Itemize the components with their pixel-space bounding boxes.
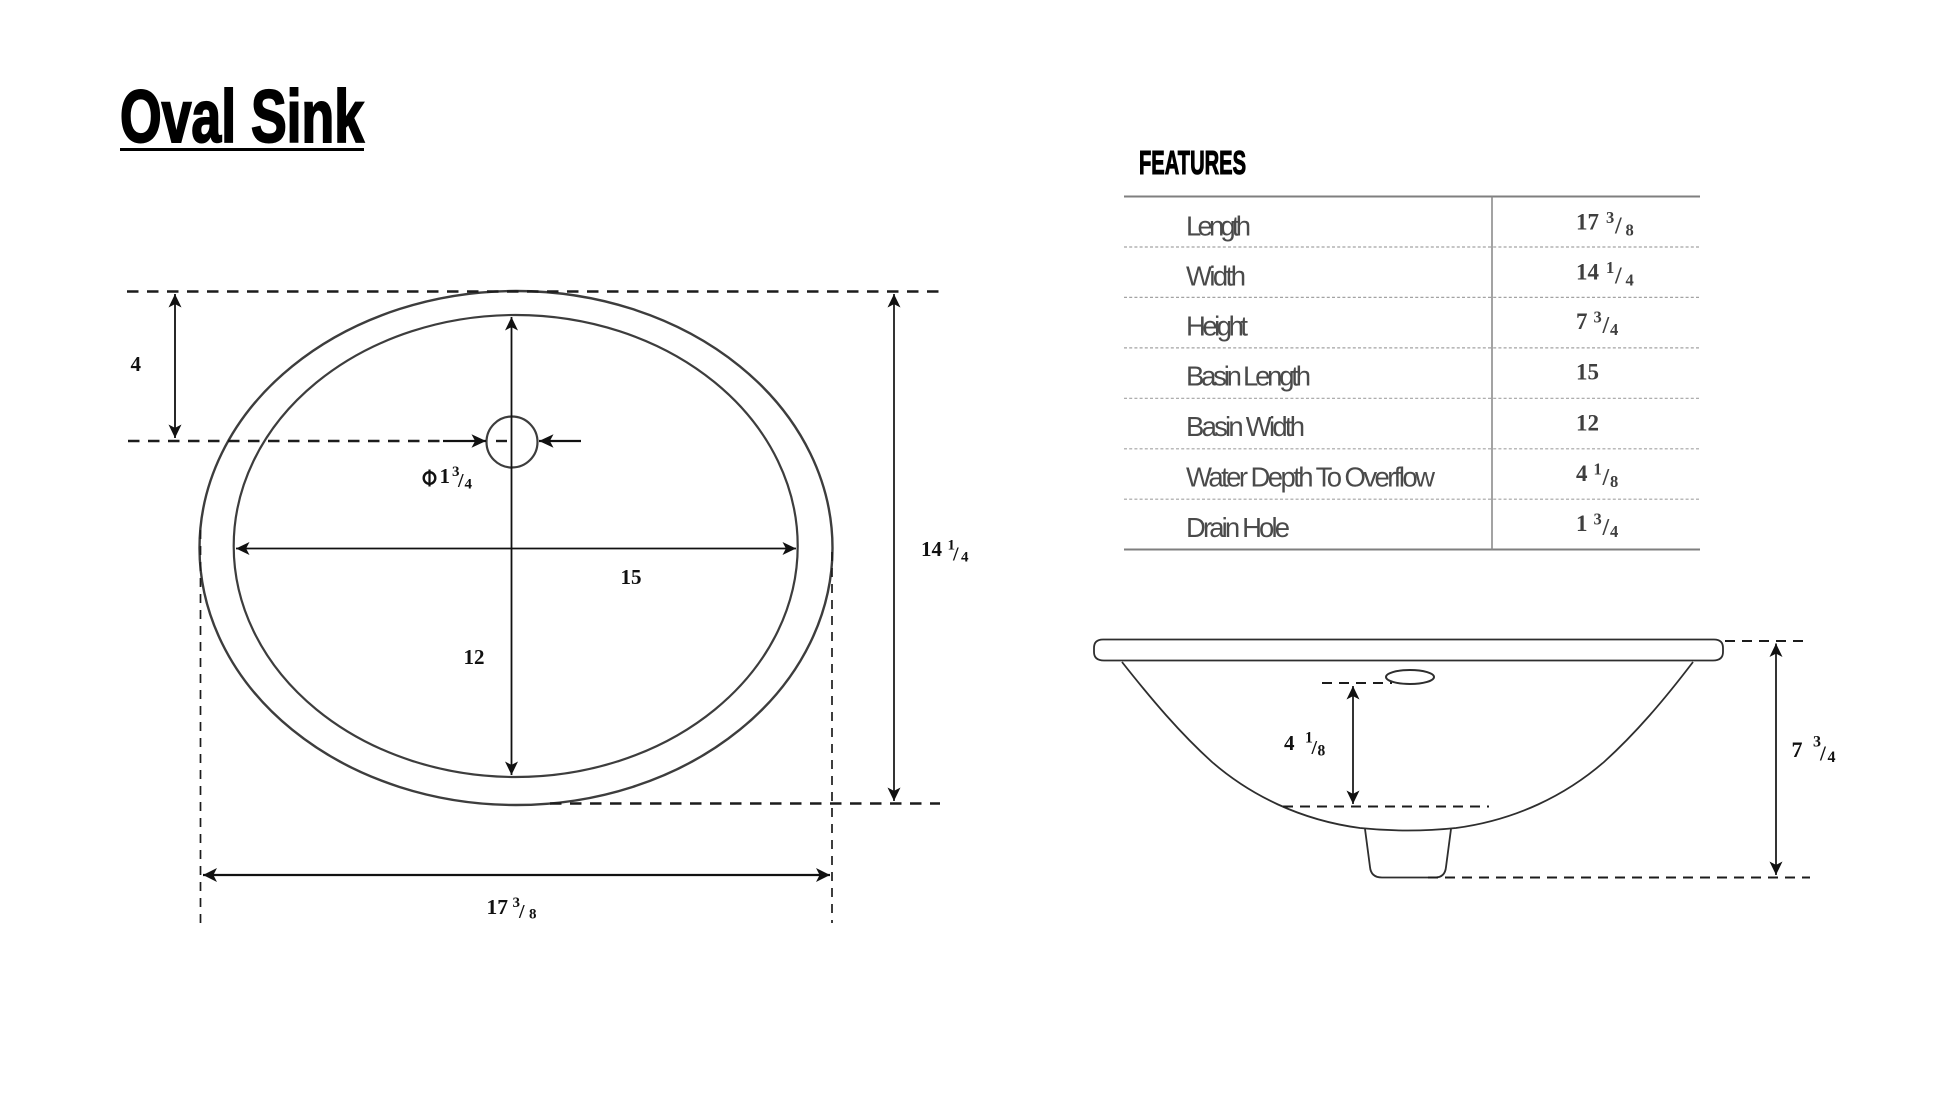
- svg-text:7: 7: [1576, 309, 1588, 334]
- svg-text:8: 8: [1610, 472, 1618, 491]
- svg-text:/: /: [1819, 742, 1827, 766]
- svg-text:7: 7: [1792, 737, 1803, 762]
- svg-text:Width: Width: [1186, 261, 1246, 292]
- svg-text:4: 4: [465, 477, 473, 493]
- svg-text:4: 4: [1626, 271, 1634, 290]
- svg-text:4: 4: [131, 352, 142, 376]
- svg-text:Drain Hole: Drain Hole: [1186, 512, 1290, 543]
- svg-text:3: 3: [1606, 208, 1614, 227]
- svg-text:/: /: [1602, 313, 1610, 339]
- svg-text:4: 4: [1828, 749, 1836, 766]
- svg-text:14: 14: [921, 537, 943, 561]
- svg-text:14: 14: [1576, 260, 1600, 285]
- svg-text:/: /: [1602, 515, 1610, 541]
- svg-text:17: 17: [487, 895, 509, 919]
- svg-text:15: 15: [621, 565, 642, 589]
- svg-text:1: 1: [1594, 460, 1602, 479]
- svg-text:12: 12: [1576, 411, 1599, 436]
- svg-text:4: 4: [1284, 731, 1295, 755]
- svg-text:8: 8: [1626, 221, 1634, 240]
- svg-text:Oval Sink: Oval Sink: [120, 75, 365, 158]
- svg-text:/: /: [1614, 264, 1622, 290]
- svg-text:Basin Width: Basin Width: [1186, 411, 1305, 442]
- svg-text:4: 4: [1610, 320, 1618, 339]
- svg-text:4: 4: [961, 550, 969, 566]
- svg-text:17: 17: [1576, 210, 1599, 235]
- svg-text:FEATURES: FEATURES: [1139, 144, 1246, 181]
- svg-text:Length: Length: [1186, 211, 1251, 242]
- svg-text:/: /: [952, 544, 959, 566]
- svg-text:3: 3: [1594, 510, 1602, 529]
- svg-text:15: 15: [1576, 360, 1599, 385]
- svg-text:/: /: [1311, 737, 1318, 759]
- svg-text:/: /: [1602, 465, 1610, 491]
- svg-text:12: 12: [464, 645, 485, 669]
- svg-text:/: /: [518, 901, 525, 923]
- svg-text:8: 8: [529, 907, 537, 923]
- svg-text:Water Depth To Overflow: Water Depth To Overflow: [1186, 462, 1435, 493]
- svg-text:Basin Length: Basin Length: [1186, 361, 1311, 392]
- svg-text:/: /: [1614, 214, 1622, 240]
- svg-text:1: 1: [440, 464, 451, 488]
- svg-text:8: 8: [1318, 743, 1326, 760]
- svg-text:4: 4: [1576, 461, 1588, 486]
- svg-text:3: 3: [1594, 308, 1602, 327]
- svg-text:4: 4: [1610, 522, 1618, 541]
- svg-text:1: 1: [1576, 511, 1588, 536]
- svg-text:Height: Height: [1186, 311, 1248, 342]
- svg-text:1: 1: [1606, 258, 1614, 277]
- svg-text:/: /: [457, 470, 464, 492]
